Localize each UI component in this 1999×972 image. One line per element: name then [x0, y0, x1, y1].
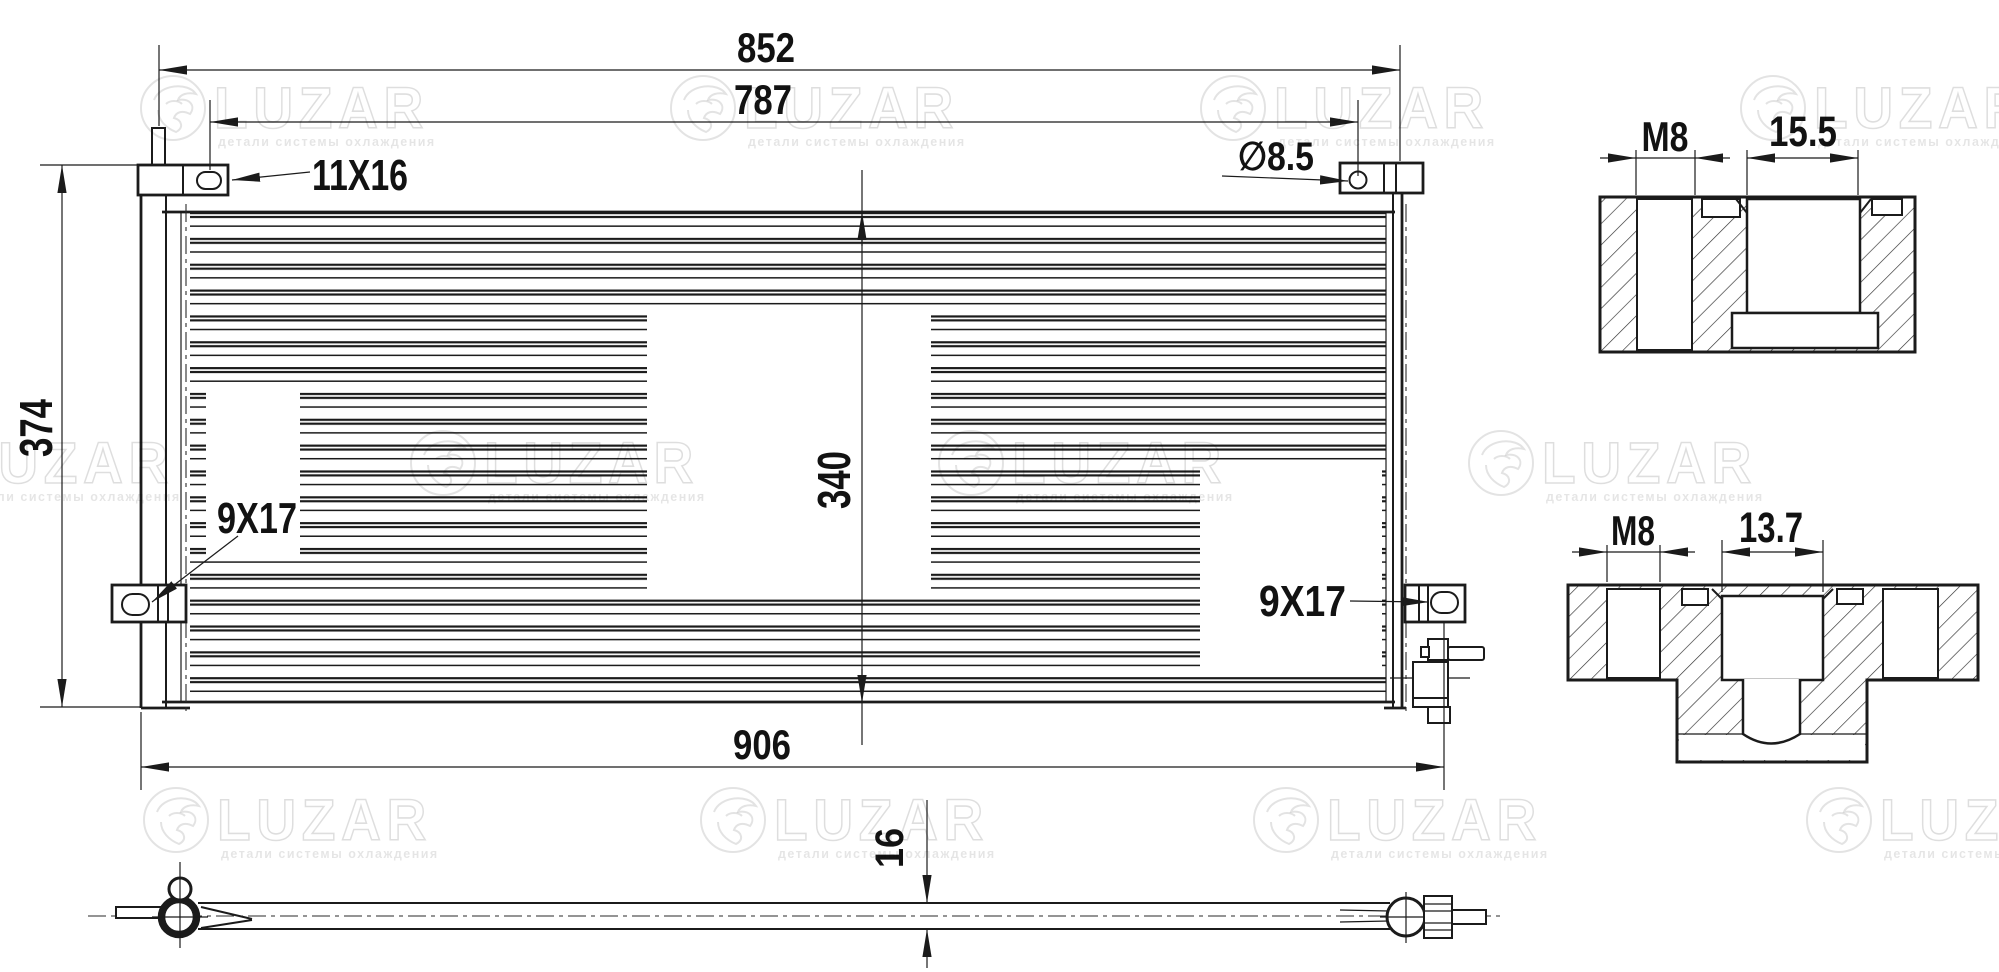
watermark [1201, 76, 1496, 149]
bottom-left-fitting [116, 862, 252, 948]
callout-9x17-right: 9X17 [1259, 577, 1429, 626]
callout-9x17-left-label: 9X17 [217, 494, 297, 543]
watermark [701, 788, 996, 861]
pipe-stub [1448, 647, 1484, 660]
pipe-fittings [1390, 622, 1484, 760]
watermark [144, 788, 439, 861]
bottom-right-fitting [1380, 892, 1486, 943]
detail-bottom-thread-label: M8 [1611, 507, 1655, 554]
dim-340-label: 340 [808, 451, 860, 509]
detail-bottom-dims: M8 13.7 [1572, 504, 1823, 592]
drawing-svg: LUZAR детали системы охлаждения [0, 0, 1999, 972]
dim-906-label: 906 [733, 721, 791, 768]
watermark [1469, 431, 1764, 504]
dim-906: 906 [141, 712, 1444, 790]
callout-11x16-label: 11X16 [312, 151, 408, 200]
slot-11x16 [197, 172, 221, 189]
watermark [671, 76, 966, 149]
watermark [1807, 788, 1999, 861]
watermark [939, 431, 1234, 504]
dim-852-label: 852 [737, 24, 795, 71]
watermark [0, 431, 181, 504]
bracket-bottom-right [1405, 585, 1465, 622]
slot-9x17-right [1431, 592, 1458, 613]
slot-9x17-left [122, 594, 149, 615]
detail-section-bottom: M8 13.7 [1568, 504, 1978, 762]
detail-top-thread-label: M8 [1642, 113, 1689, 160]
technical-drawing-sheet: LUZAR детали системы охлаждения [0, 0, 1999, 972]
bracket-bottom-left [112, 585, 186, 622]
watermark [141, 76, 436, 149]
main-front-view [112, 128, 1484, 760]
watermark [1254, 788, 1549, 861]
watermark [411, 431, 706, 504]
callout-9x17-right-label: 9X17 [1259, 577, 1346, 626]
right-tank [1384, 193, 1406, 712]
callout-11x16: 11X16 [232, 151, 408, 200]
detail-bottom-width-label: 13.7 [1739, 504, 1803, 552]
bracket-top-right [1340, 163, 1423, 193]
